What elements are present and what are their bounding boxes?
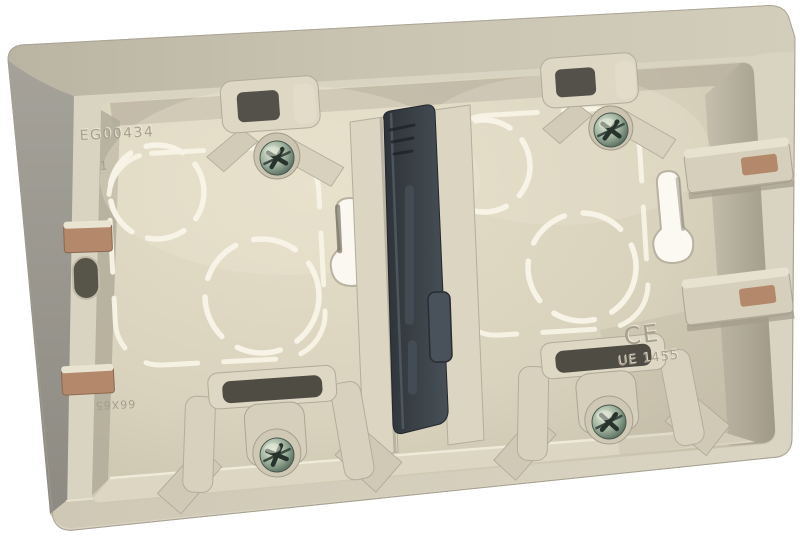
cavity-number-text: 1 [99, 159, 107, 173]
product-photo-canvas: Product photo: beige two-gang surface-mo… [0, 0, 800, 536]
divider-emboss-ridge [405, 185, 414, 325]
divider-clip [428, 292, 452, 363]
cable-knockout-left-bottom [61, 364, 114, 396]
mold-code-text: 66X65 [94, 397, 135, 412]
surface-mount-box-photo: Product photo: beige two-gang surface-mo… [0, 0, 800, 536]
cable-knockout-left-top [63, 220, 112, 253]
emboss-ce-mark: CE CE [622, 318, 662, 351]
divider-emboss-ridge-2 [408, 340, 417, 395]
oblong-slot-left [72, 257, 99, 300]
emboss-cavity-number: 1 [99, 159, 107, 173]
box-left-wall [8, 60, 74, 521]
emboss-mold-code: 66X65 [94, 397, 135, 412]
ce-mark-text: CE [622, 319, 661, 351]
